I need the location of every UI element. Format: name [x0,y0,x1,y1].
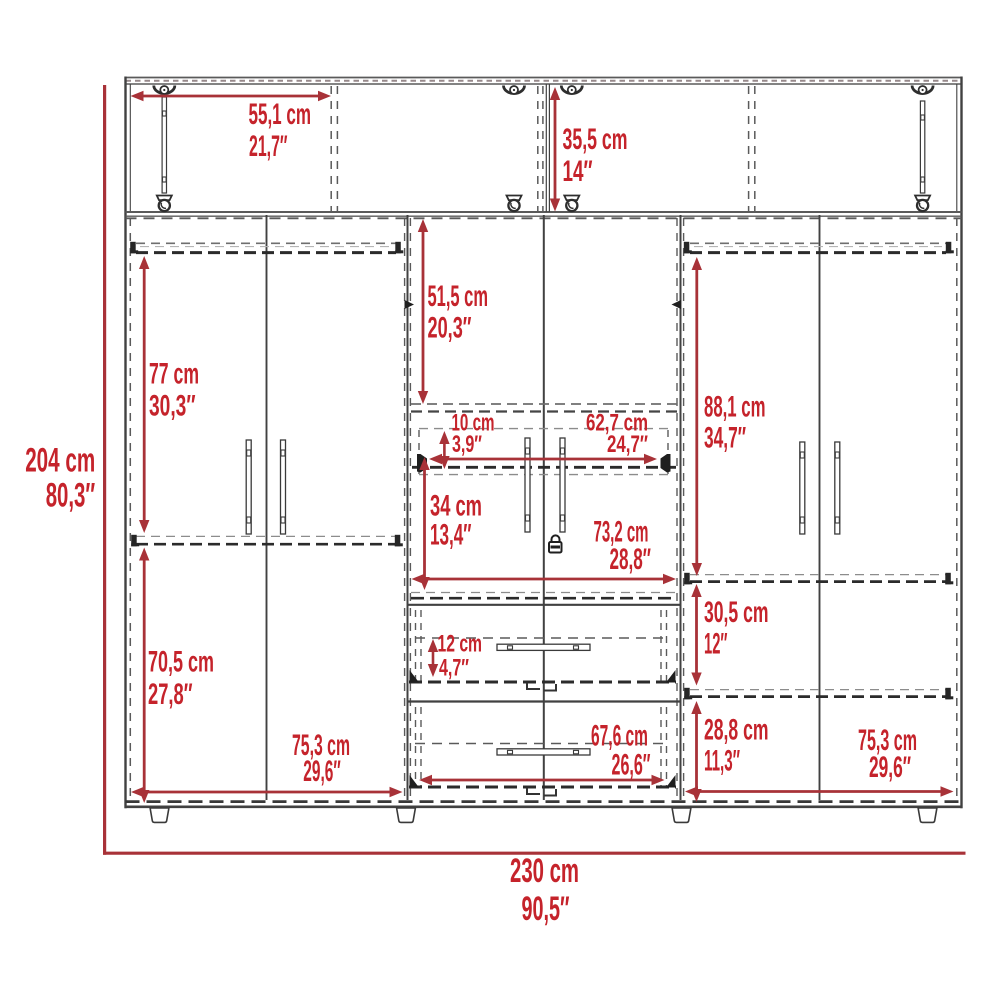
svg-text:26,6″: 26,6″ [612,749,651,782]
svg-text:88,1 cm: 88,1 cm [704,391,766,424]
svg-text:12 cm: 12 cm [438,631,483,658]
svg-text:34,7″: 34,7″ [704,422,746,455]
svg-text:11,3″: 11,3″ [704,745,740,778]
svg-text:204 cm: 204 cm [25,442,95,480]
svg-text:51,5 cm: 51,5 cm [428,280,489,313]
svg-text:20,3″: 20,3″ [428,312,472,345]
svg-text:12″: 12″ [704,628,728,661]
svg-text:77 cm: 77 cm [149,358,199,391]
svg-text:30,5 cm: 30,5 cm [704,596,769,629]
svg-text:55,1 cm: 55,1 cm [249,98,312,131]
svg-text:28,8″: 28,8″ [610,543,652,576]
svg-text:14″: 14″ [563,155,593,188]
svg-text:27,8″: 27,8″ [148,678,193,711]
svg-text:230 cm: 230 cm [510,852,579,890]
svg-text:28,8 cm: 28,8 cm [704,714,769,747]
svg-text:90,5″: 90,5″ [522,890,570,928]
svg-text:4,7″: 4,7″ [439,655,469,682]
svg-text:21,7″: 21,7″ [249,130,288,163]
svg-text:3,9″: 3,9″ [452,431,482,458]
svg-text:13,4″: 13,4″ [430,519,472,552]
svg-text:80,3″: 80,3″ [46,477,96,515]
svg-text:70,5 cm: 70,5 cm [148,646,214,679]
svg-text:30,3″: 30,3″ [149,390,196,423]
svg-text:29,6″: 29,6″ [869,751,911,784]
svg-text:24,7″: 24,7″ [607,431,648,458]
svg-text:29,6″: 29,6″ [303,755,341,788]
svg-text:35,5 cm: 35,5 cm [563,123,628,156]
